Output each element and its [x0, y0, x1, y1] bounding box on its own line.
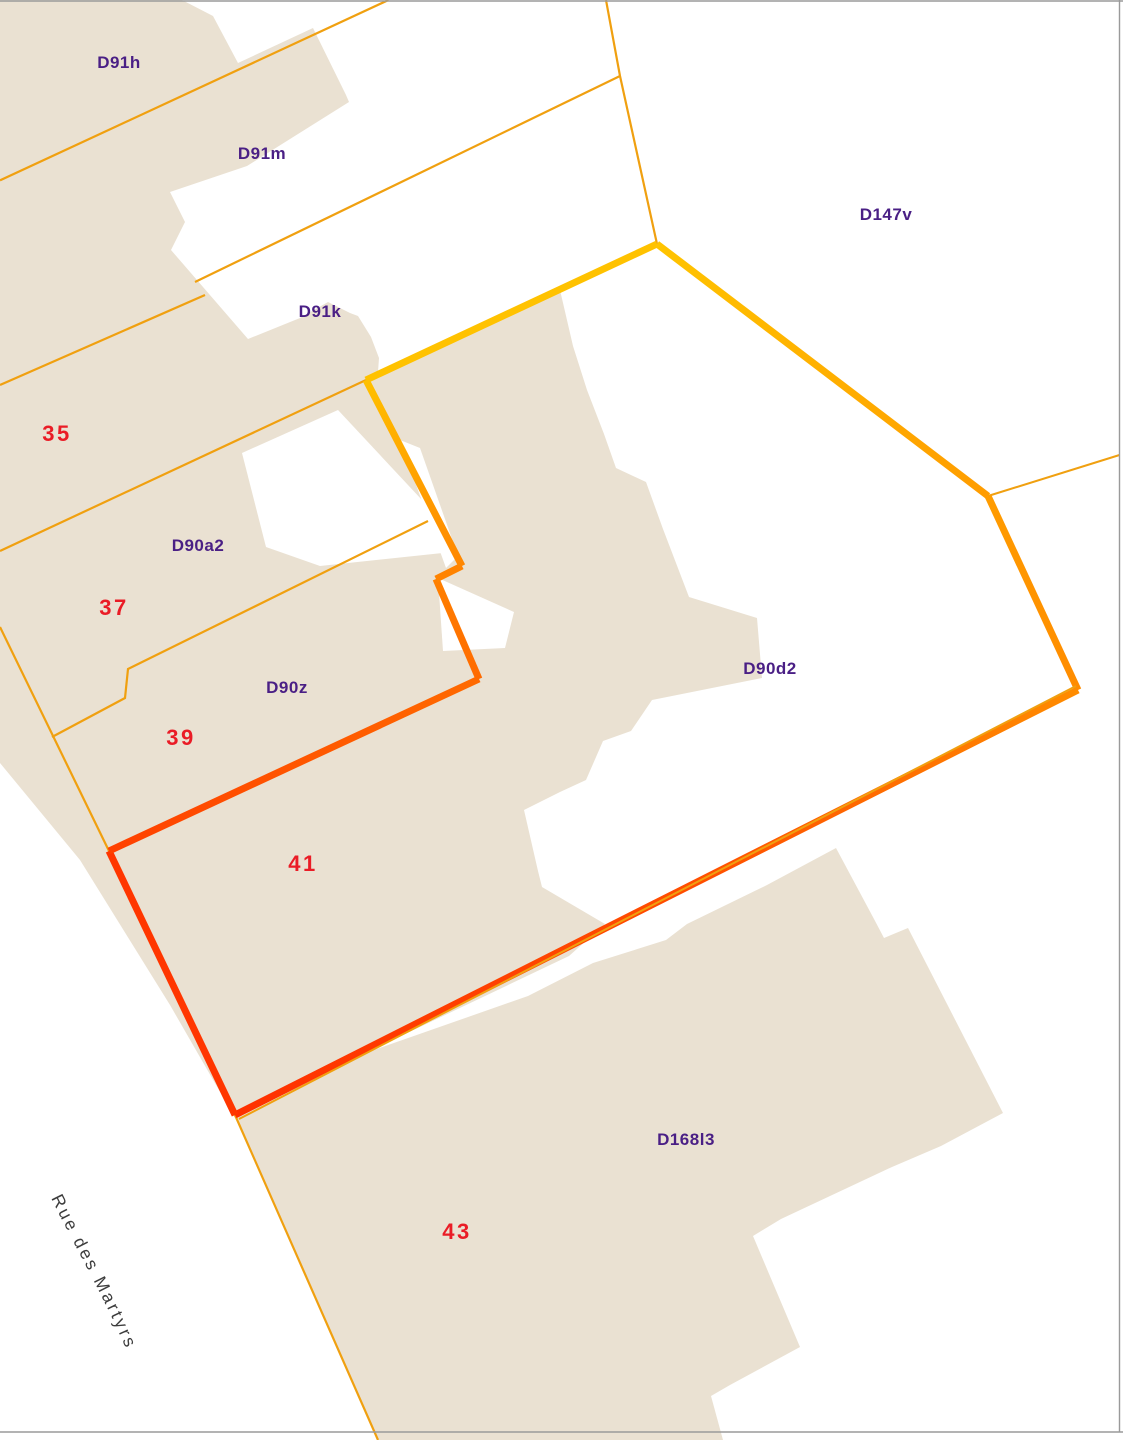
svg-text:D90d2: D90d2 [743, 659, 797, 678]
svg-text:35: 35 [42, 421, 71, 446]
svg-text:D147v: D147v [860, 205, 913, 224]
svg-text:43: 43 [442, 1219, 471, 1244]
svg-text:D91k: D91k [299, 302, 342, 321]
svg-text:D91h: D91h [97, 53, 141, 72]
svg-text:D168l3: D168l3 [657, 1130, 715, 1149]
svg-text:D90a2: D90a2 [172, 536, 225, 555]
svg-text:37: 37 [99, 595, 128, 620]
svg-text:D90z: D90z [266, 678, 308, 697]
svg-text:41: 41 [288, 851, 317, 876]
svg-text:39: 39 [166, 725, 195, 750]
svg-text:D91m: D91m [238, 144, 286, 163]
